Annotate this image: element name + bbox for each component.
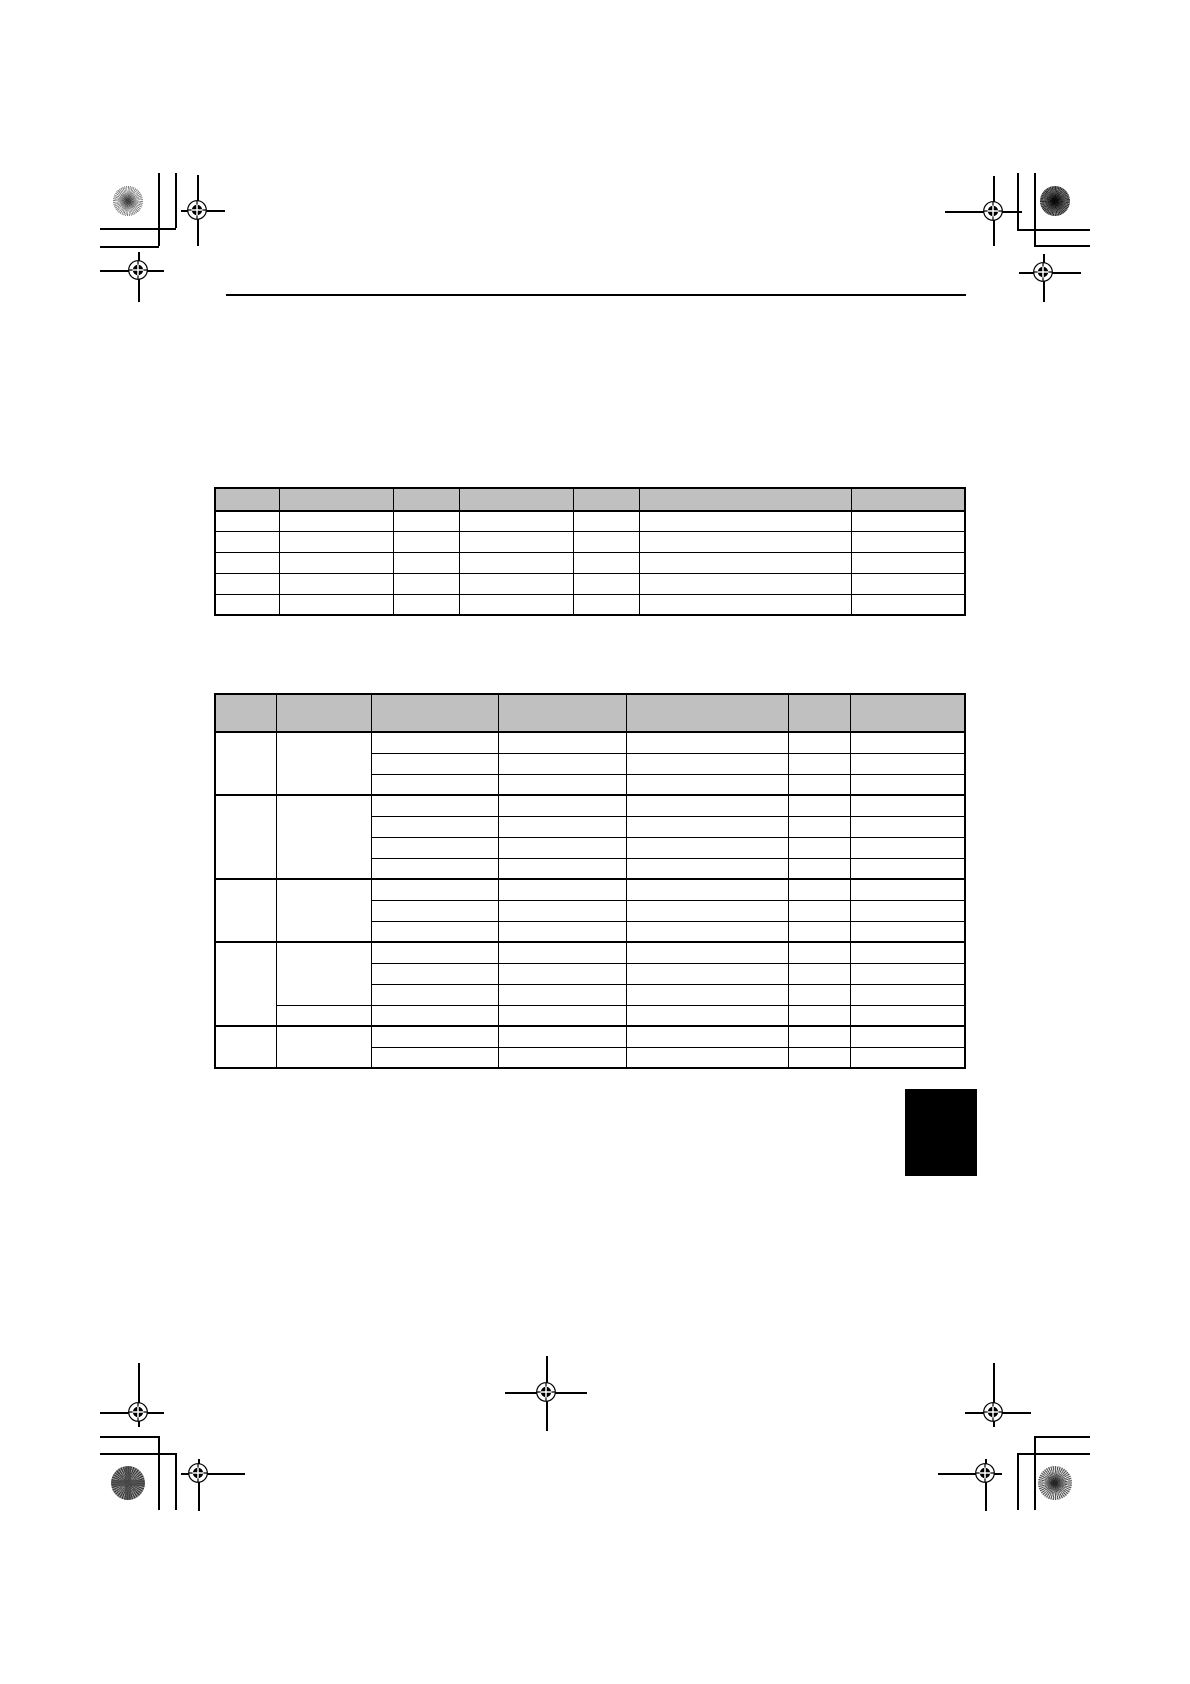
table-2-cell — [215, 1026, 276, 1068]
table-2-cell — [371, 1047, 498, 1068]
table-2-cell — [788, 984, 850, 1005]
table-1-cell — [279, 511, 393, 532]
table-2-cell — [626, 942, 788, 963]
table-2-cell — [371, 1026, 498, 1047]
table-2-cell — [850, 984, 965, 1005]
table-1-cell — [393, 511, 459, 532]
table-2-cell — [788, 963, 850, 984]
table-1-cell — [279, 594, 393, 615]
table-2-cell — [788, 816, 850, 837]
registration-mark-icon — [982, 200, 1004, 222]
table-1-header-cell — [279, 488, 393, 511]
registration-mark-icon — [187, 1462, 209, 1484]
table-2-cell — [371, 837, 498, 858]
pinwheel-target-icon — [1038, 1466, 1072, 1500]
table-1-cell — [459, 532, 573, 553]
table-1-cell — [215, 594, 279, 615]
table-2-cell — [626, 879, 788, 900]
registration-mark-icon — [982, 1401, 1004, 1423]
table-2-cell — [276, 879, 371, 942]
table-1-cell — [459, 573, 573, 594]
table-1-cell — [851, 532, 965, 553]
table-2-cell — [498, 1026, 626, 1047]
table-2-cell — [626, 816, 788, 837]
table-1-cell — [639, 511, 851, 532]
table-2-cell — [371, 984, 498, 1005]
table-1-cell — [279, 553, 393, 574]
table-2-cell — [371, 879, 498, 900]
trim-mark-line — [175, 1453, 177, 1510]
registration-mark-icon — [1032, 261, 1054, 283]
chapter-thumb-tab — [905, 1089, 977, 1176]
trim-mark-line — [1017, 173, 1019, 229]
table-2-cell — [626, 1005, 788, 1026]
table-2-cell — [788, 795, 850, 816]
table-2-header-cell — [788, 694, 850, 732]
trim-mark-line — [100, 246, 159, 248]
table-2-header-cell — [498, 694, 626, 732]
table-1-header-cell — [459, 488, 573, 511]
table-2-cell — [498, 942, 626, 963]
table-1 — [214, 487, 966, 616]
table-1-cell — [279, 532, 393, 553]
table-2-cell — [788, 1047, 850, 1068]
table-2 — [214, 693, 966, 1069]
table-1-cell — [393, 553, 459, 574]
table-2-cell — [850, 900, 965, 921]
table-2-cell — [850, 1026, 965, 1047]
trim-mark-line — [1034, 245, 1090, 247]
manual-page — [0, 0, 1190, 1684]
table-2-cell — [371, 774, 498, 795]
trim-mark-line — [1034, 1436, 1036, 1510]
table-2-cell — [498, 1047, 626, 1068]
table-1-cell — [215, 511, 279, 532]
table-2-cell — [276, 795, 371, 879]
table-1-cell — [573, 511, 639, 532]
table-2-cell — [850, 795, 965, 816]
table-2-cell — [850, 858, 965, 879]
table-2-cell — [498, 816, 626, 837]
table-2-cell — [626, 963, 788, 984]
table-1-cell — [851, 573, 965, 594]
trim-mark-line — [1017, 1453, 1090, 1455]
table-1-cell — [639, 573, 851, 594]
table-1-cell — [573, 553, 639, 574]
table-1-header-cell — [573, 488, 639, 511]
table-1-cell — [215, 532, 279, 553]
table-2-cell — [498, 879, 626, 900]
table-1-header-cell — [215, 488, 279, 511]
table-2-cell — [215, 732, 276, 795]
table-1-cell — [639, 553, 851, 574]
pinwheel-target-icon — [113, 186, 143, 216]
table-2-cell — [498, 858, 626, 879]
table-2-cell — [371, 1005, 498, 1026]
table-2-cell — [371, 732, 498, 753]
table-2-header-cell — [626, 694, 788, 732]
table-2-header-cell — [215, 694, 276, 732]
trim-mark-line — [1017, 1453, 1019, 1510]
trim-mark-line — [158, 173, 160, 246]
table-2-cell — [371, 921, 498, 942]
table-2-cell — [498, 1005, 626, 1026]
table-2-cell — [371, 963, 498, 984]
table-2-cell — [626, 984, 788, 1005]
table-1-cell — [459, 511, 573, 532]
table-2-cell — [850, 753, 965, 774]
table-2-cell — [788, 774, 850, 795]
table-1-cell — [215, 553, 279, 574]
registration-mark-icon — [535, 1381, 557, 1403]
table-2-cell — [371, 858, 498, 879]
table-1-cell — [215, 573, 279, 594]
trim-mark-line — [1017, 229, 1090, 231]
table-2-cell — [850, 942, 965, 963]
table-2-cell — [371, 900, 498, 921]
table-2-cell — [626, 1047, 788, 1068]
table-2-cell — [850, 1047, 965, 1068]
table-2-cell — [626, 837, 788, 858]
table-2-cell — [215, 795, 276, 879]
table-1-cell — [573, 573, 639, 594]
table-1-cell — [393, 532, 459, 553]
registration-mark-icon — [127, 259, 149, 281]
trim-mark-line — [158, 1436, 160, 1510]
registration-mark-icon — [127, 1401, 149, 1423]
table-2-cell — [626, 732, 788, 753]
table-2-header-cell — [371, 694, 498, 732]
table-2-cell — [276, 1026, 371, 1068]
table-1-cell — [459, 594, 573, 615]
table-2-cell — [498, 753, 626, 774]
table-1-header-cell — [851, 488, 965, 511]
table-2-header-cell — [276, 694, 371, 732]
table-2-cell — [276, 942, 371, 1005]
table-2-cell — [788, 1005, 850, 1026]
table-2-cell — [626, 858, 788, 879]
table-2-cell — [788, 942, 850, 963]
table-2-cell — [850, 879, 965, 900]
trim-mark-line — [1034, 1436, 1090, 1438]
table-1-cell — [851, 553, 965, 574]
table-2-cell — [498, 963, 626, 984]
table-2-cell — [626, 1026, 788, 1047]
table-2-cell — [788, 753, 850, 774]
trim-mark-line — [100, 1436, 159, 1438]
table-2-cell — [850, 774, 965, 795]
table-1-header-cell — [393, 488, 459, 511]
table-2-cell — [215, 879, 276, 942]
table-2-cell — [371, 942, 498, 963]
table-1-cell — [573, 532, 639, 553]
table-2-cell — [788, 921, 850, 942]
table-2-cell — [626, 900, 788, 921]
table-1-cell — [393, 594, 459, 615]
table-1-cell — [851, 594, 965, 615]
trim-mark-line — [1034, 173, 1036, 245]
table-1-header-cell — [639, 488, 851, 511]
table-2-cell — [498, 837, 626, 858]
trim-mark-line — [100, 1453, 176, 1455]
table-2-header-cell — [850, 694, 965, 732]
table-2-cell — [788, 1026, 850, 1047]
trim-mark-line — [100, 228, 176, 230]
table-2-cell — [215, 942, 276, 1026]
table-2-cell — [626, 795, 788, 816]
table-2-cell — [498, 774, 626, 795]
table-2-cell — [788, 837, 850, 858]
table-2-cell — [371, 795, 498, 816]
table-2-cell — [850, 921, 965, 942]
table-1-cell — [279, 573, 393, 594]
table-2-cell — [276, 732, 371, 795]
table-1-cell — [639, 532, 851, 553]
table-2-cell — [626, 921, 788, 942]
table-1-cell — [393, 573, 459, 594]
table-2-cell — [276, 1005, 371, 1026]
table-2-cell — [850, 732, 965, 753]
table-2-cell — [498, 984, 626, 1005]
table-2-cell — [498, 921, 626, 942]
table-2-cell — [788, 900, 850, 921]
table-1-cell — [639, 594, 851, 615]
table-2-cell — [498, 795, 626, 816]
table-2-cell — [626, 774, 788, 795]
pinwheel-target-icon — [111, 1466, 145, 1500]
pinwheel-target-icon — [1040, 186, 1070, 216]
table-2-cell — [788, 858, 850, 879]
table-2-cell — [498, 900, 626, 921]
table-2-cell — [371, 816, 498, 837]
table-1-cell — [573, 594, 639, 615]
table-2-cell — [788, 732, 850, 753]
table-2-cell — [371, 753, 498, 774]
table-2-cell — [850, 963, 965, 984]
table-1-cell — [851, 511, 965, 532]
trim-mark-line — [175, 173, 177, 228]
registration-mark-icon — [186, 199, 208, 221]
table-1-cell — [459, 553, 573, 574]
header-rule — [226, 294, 966, 296]
table-2-cell — [498, 732, 626, 753]
registration-mark-icon — [974, 1462, 996, 1484]
table-2-cell — [850, 837, 965, 858]
table-2-cell — [626, 753, 788, 774]
table-2-cell — [788, 879, 850, 900]
table-2-cell — [850, 1005, 965, 1026]
table-2-cell — [850, 816, 965, 837]
